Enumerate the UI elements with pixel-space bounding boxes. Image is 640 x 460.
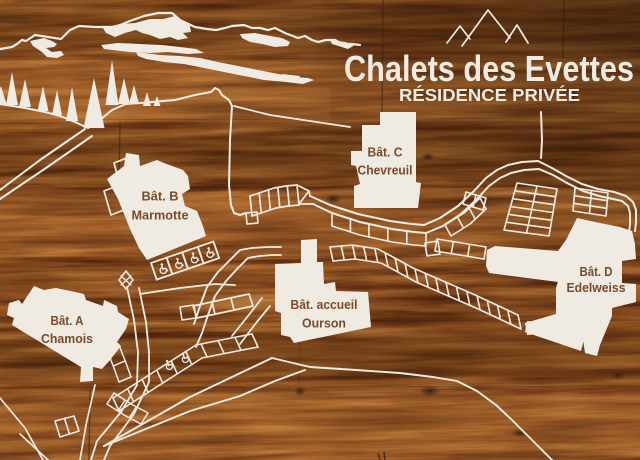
svg-text:Marmotte: Marmotte — [132, 208, 189, 223]
svg-text:Chevreuil: Chevreuil — [358, 163, 413, 178]
svg-text:Bât. B: Bât. B — [142, 189, 179, 204]
svg-text:Bât. D: Bât. D — [580, 264, 613, 279]
svg-text:Bât. C: Bât. C — [368, 145, 404, 160]
svg-text:Chamois: Chamois — [41, 331, 93, 346]
svg-text:RÉSIDENCE PRIVÉE: RÉSIDENCE PRIVÉE — [399, 84, 580, 105]
svg-text:Edelweiss: Edelweiss — [567, 280, 626, 295]
svg-text:Bât. accueil: Bât. accueil — [291, 297, 358, 312]
svg-text:Ourson: Ourson — [302, 316, 346, 331]
svg-text:Bât. A: Bât. A — [51, 313, 85, 328]
svg-text:Chalets des Evettes: Chalets des Evettes — [344, 48, 634, 89]
